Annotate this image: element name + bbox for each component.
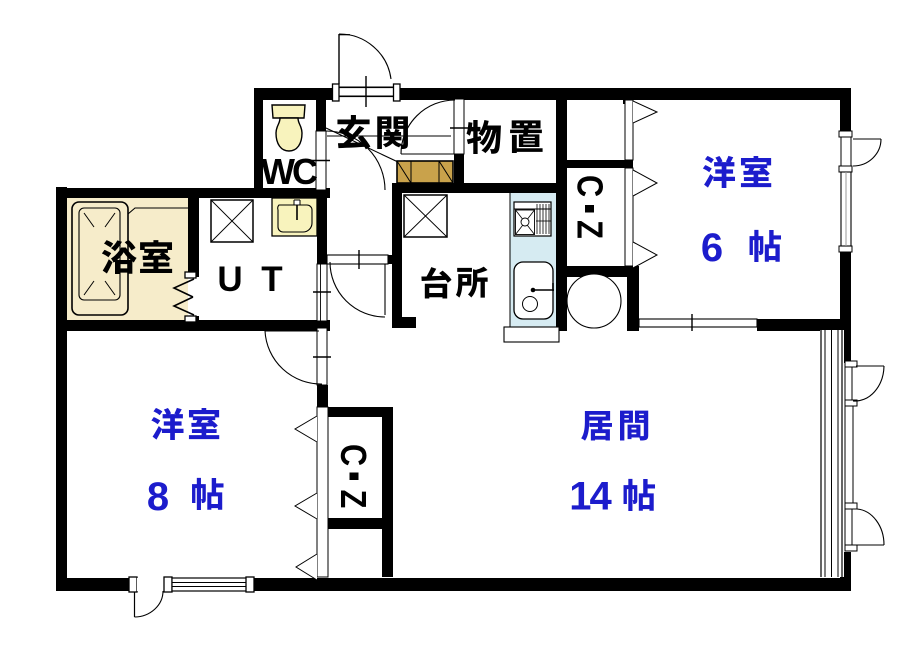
svg-text:U: U xyxy=(217,260,242,299)
svg-text:T: T xyxy=(261,260,282,299)
svg-text:14: 14 xyxy=(569,475,612,519)
svg-text:Z: Z xyxy=(332,490,372,509)
svg-text:6: 6 xyxy=(701,226,723,270)
svg-text:WC: WC xyxy=(261,151,318,192)
svg-text:C: C xyxy=(332,444,372,466)
svg-text:8: 8 xyxy=(147,475,169,519)
svg-text:C: C xyxy=(569,175,609,197)
svg-text:Z: Z xyxy=(569,220,609,239)
